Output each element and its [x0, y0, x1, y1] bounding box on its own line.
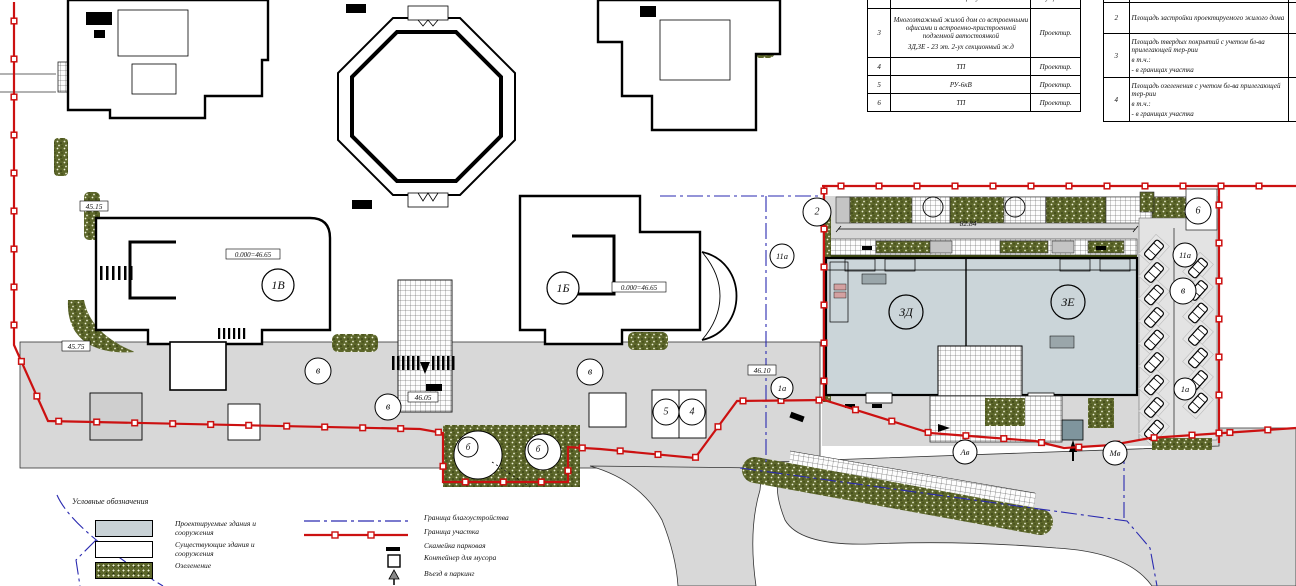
cell-status: Существ. — [1031, 0, 1081, 9]
table-row: 3 Площадь твердых покрытий с учетом бл-в… — [1104, 34, 1296, 78]
legend-label: Проектируемые здания и сооружения — [175, 520, 285, 537]
legend-item-green: Озеленение — [95, 562, 211, 579]
svg-text:Мв: Мв — [1109, 448, 1121, 458]
legend-item-plot-boundary: Граница участка — [302, 528, 479, 542]
table-row: 4 Площадь озеленения с учетом бл-ва прил… — [1104, 78, 1296, 122]
zero-mark-1b: 0.000=46.65 — [612, 282, 666, 292]
svg-text:0.000=46.65: 0.000=46.65 — [621, 284, 658, 292]
cell-name: Площадь озеленения с учетом бл-ва прилег… — [1129, 78, 1288, 122]
legend-label: Граница участка — [424, 528, 479, 537]
svg-text:1а: 1а — [1181, 384, 1190, 394]
cell-name: Многоэтажный жилой дом со встроенными оф… — [891, 9, 1031, 58]
shed-1 — [170, 342, 226, 390]
svg-text:1В: 1В — [271, 278, 285, 292]
dimension-text: 82.84 — [960, 219, 977, 228]
svg-text:в: в — [386, 402, 391, 413]
buildings-table: 2 биологического факультетов Существ. 3 … — [867, 0, 1081, 112]
legend-label: Контейнер для мусора — [424, 554, 496, 563]
callout-11a-left: 11а — [770, 244, 794, 268]
cell-status: Проектир. — [1031, 94, 1081, 112]
shed-3 — [228, 404, 260, 440]
callout-mv: Мв — [1103, 441, 1127, 465]
greenery-swatch — [95, 562, 153, 579]
cell-name: Площадь застройки проектируемого жилого … — [1129, 3, 1288, 34]
legend-label: Скамейка парковая — [424, 542, 486, 551]
area-line: Площадь озеленения с учетом бл-ва прилег… — [1132, 82, 1286, 98]
site-plan-canvas: 1В 1Б ЗД ЗЕ 2 6 11а в 1а 11а 1а в в в 5 — [0, 0, 1296, 586]
svg-text:46.05: 46.05 — [415, 393, 432, 402]
cell-status: Проектир. — [1031, 58, 1081, 76]
callout-v2: в — [375, 394, 401, 420]
legend-label: Граница благоустройства — [424, 514, 509, 523]
svg-text:б: б — [536, 444, 541, 454]
cell-num: 2 — [868, 0, 891, 9]
callout-b2: б — [528, 439, 548, 459]
table-row: 2 биологического факультетов Существ. — [868, 0, 1081, 9]
callout-b1: б — [458, 437, 478, 457]
zero-mark-1v: 0.000=46.65 — [226, 249, 280, 259]
cell-num: 4 — [868, 58, 891, 76]
callout-v3: в — [577, 359, 603, 385]
callout-4: 4 — [679, 399, 705, 425]
legend-item-improvement-boundary: Граница благоустройства — [302, 514, 509, 528]
svg-text:1а: 1а — [778, 383, 787, 393]
building-description: Многоэтажный жилой дом со встроенными оф… — [893, 16, 1028, 40]
proposed-swatch — [95, 520, 153, 537]
cell-name: ТП — [891, 94, 1031, 112]
callout-v1: в — [305, 358, 331, 384]
legend-label: Озеленение — [175, 562, 211, 571]
proposed-building-3d-3e — [826, 258, 1137, 403]
site-plan-drawing: 1В 1Б ЗД ЗЕ 2 6 11а в 1а 11а 1а в в в 5 — [0, 0, 1296, 586]
svg-text:1Б: 1Б — [556, 281, 569, 295]
table-row: 4 ТП Проектир. — [868, 58, 1081, 76]
legend-item-existing: Существующие здания и сооружения — [95, 541, 285, 558]
area-sub2: - в границах участка — [1132, 110, 1286, 118]
elevation-4575: 45.75 — [62, 341, 90, 351]
bench — [426, 384, 442, 391]
cell-num: 6 — [868, 94, 891, 112]
cell-value — [1289, 3, 1296, 34]
svg-text:45.75: 45.75 — [68, 342, 85, 351]
callout-6: 6 — [1185, 198, 1211, 224]
plot-line-sample — [302, 528, 410, 542]
callout-2: 2 — [803, 198, 831, 226]
trash-container-icon — [302, 554, 410, 568]
shed-2 — [90, 393, 142, 440]
svg-text:ЗД: ЗД — [899, 305, 914, 319]
legend-item-proposed: Проектируемые здания и сооружения — [95, 520, 285, 537]
cell-num: 4 — [1104, 78, 1130, 122]
building-description-2: ЗД,ЗЕ - 23 эт. 2-ух секционный ж.д — [893, 43, 1028, 51]
cell-num: 3 — [868, 9, 891, 58]
cell-value — [1289, 34, 1296, 78]
cell-num: 3 — [1104, 34, 1130, 78]
area-sub: в т.ч.: — [1132, 56, 1286, 64]
table-row: 3 Многоэтажный жилой дом со встроенными … — [868, 9, 1081, 58]
table-row: 6 ТП Проектир. — [868, 94, 1081, 112]
parking-entry-arrow-icon — [302, 570, 410, 584]
svg-text:0.000=46.65: 0.000=46.65 — [235, 251, 272, 259]
improvement-line-sample — [302, 514, 410, 528]
cell-name: РУ-6кВ — [891, 76, 1031, 94]
area-sub: в т.ч.: — [1132, 100, 1286, 108]
callout-11a-right: 11а — [1173, 243, 1197, 267]
cell-name: ТП — [891, 58, 1031, 76]
area-line: Площадь твердых покрытий с учетом бл-ва … — [1132, 38, 1286, 54]
table-row: 5 РУ-6кВ Проектир. — [868, 76, 1081, 94]
legend-label: Въезд в паркинг — [424, 570, 475, 579]
area-sub2: - в границах участка — [1132, 66, 1286, 74]
svg-text:4: 4 — [690, 407, 695, 418]
cell-status: Проектир. — [1031, 9, 1081, 58]
svg-text:5: 5 — [664, 407, 669, 418]
svg-text:2: 2 — [815, 207, 820, 218]
callout-v-right: в — [1170, 278, 1196, 304]
legend-title: Условные обозначения — [72, 498, 148, 507]
cell-status: Проектир. — [1031, 76, 1081, 94]
legend-item-parking-entry: Въезд в паркинг — [302, 570, 475, 584]
callout-5: 5 — [653, 399, 679, 425]
cell-name: Площадь твердых покрытий с учетом бл-ва … — [1129, 34, 1288, 78]
svg-text:6: 6 — [1196, 206, 1201, 217]
tp-square-empty — [589, 393, 626, 427]
cell-num: 5 — [868, 76, 891, 94]
planting-strip-2 — [826, 239, 1137, 259]
callout-av: Ав — [953, 440, 977, 464]
existing-swatch — [95, 541, 153, 558]
building-1b — [520, 196, 700, 344]
svg-text:ЗЕ: ЗЕ — [1061, 295, 1075, 309]
svg-text:Ав: Ав — [960, 447, 970, 457]
callout-3d: ЗД — [889, 295, 923, 329]
table-row: 2 Площадь застройки проектируемого жилог… — [1104, 3, 1296, 34]
cell-value — [1289, 78, 1296, 122]
callout-1v: 1В — [262, 269, 294, 301]
cell-num: 2 — [1104, 3, 1130, 34]
svg-text:в: в — [316, 366, 321, 377]
elevation-4605: 46.05 — [408, 392, 438, 402]
svg-text:в: в — [1181, 286, 1186, 297]
areas-table: 2 Площадь застройки проектируемого жилог… — [1103, 0, 1296, 122]
callout-3e: ЗЕ — [1051, 285, 1085, 319]
svg-text:в: в — [588, 367, 593, 378]
svg-text:б: б — [466, 442, 471, 452]
svg-text:11а: 11а — [776, 251, 788, 261]
callout-1a-left: 1а — [771, 377, 793, 399]
legend-label: Существующие здания и сооружения — [175, 541, 285, 558]
elevation-4515: 45.15 — [80, 201, 108, 211]
cell-name: биологического факультетов — [891, 0, 1031, 9]
legend-item-container: Контейнер для мусора — [302, 554, 496, 568]
svg-text:45.15: 45.15 — [86, 202, 103, 211]
callout-1a-right: 1а — [1174, 378, 1196, 400]
courtyard-octagon-inner — [352, 32, 501, 181]
svg-text:46.10: 46.10 — [754, 366, 771, 375]
callout-1b: 1Б — [547, 272, 579, 304]
svg-text:11а: 11а — [1179, 250, 1191, 260]
elevation-4610: 46.10 — [748, 365, 776, 375]
